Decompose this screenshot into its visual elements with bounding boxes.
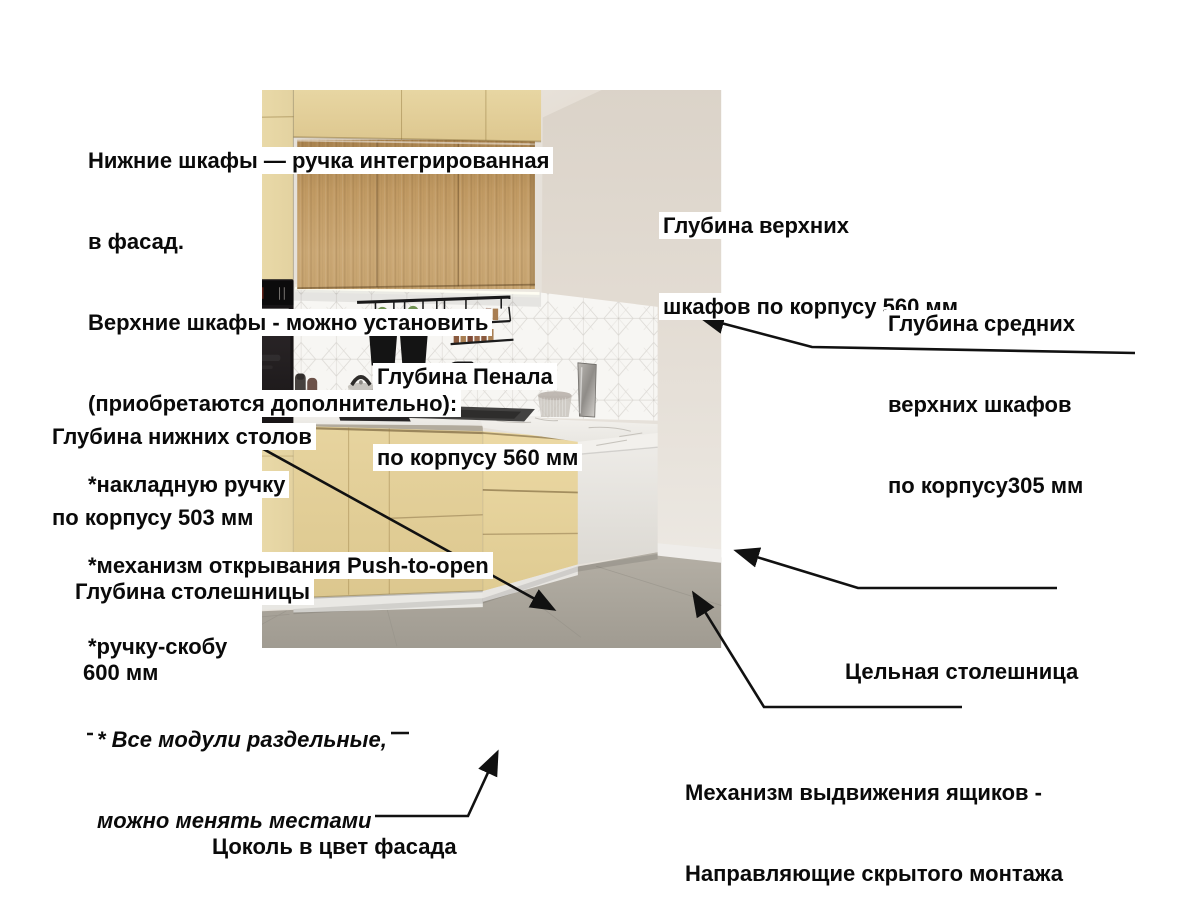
label-line: Глубина Пенала	[373, 363, 557, 390]
label-line: Механизм выдвижения ящиков -	[681, 779, 1046, 806]
label-line: Глубина нижних столов	[48, 423, 316, 450]
note-line: в фасад.	[84, 228, 188, 255]
label-line: Цельная столешница	[841, 658, 1082, 685]
note-line: Нижние шкафы — ручка интегрированная	[84, 147, 553, 174]
label-line: Направляющие скрытого монтажа	[681, 860, 1067, 887]
label-line: Глубина средних	[884, 310, 1079, 337]
label-drawer-mechanism: Механизм выдвижения ящиков - Направляющи…	[681, 725, 1067, 900]
note-line: * Все модули раздельные,	[93, 726, 391, 753]
label-line: Глубина верхних	[659, 212, 853, 239]
label-tall-cabinet-depth: Глубина Пенала по корпусу 560 мм	[373, 309, 582, 525]
label-line: по корпусу305 мм	[884, 472, 1087, 499]
label-line: Цоколь в цвет фасада	[208, 833, 461, 860]
label-line: Глубина столешницы	[71, 578, 314, 605]
annotated-kitchen-diagram: BOSCH	[0, 0, 1201, 900]
label-solid-countertop: Цельная столешница	[841, 604, 1082, 739]
label-middle-upper-cabinets-depth: Глубина средних верхних шкафов по корпус…	[884, 256, 1087, 553]
label-line: по корпусу 560 мм	[373, 444, 582, 471]
label-line: верхних шкафов	[884, 391, 1076, 418]
label-plinth: Цоколь в цвет фасада	[208, 779, 461, 900]
